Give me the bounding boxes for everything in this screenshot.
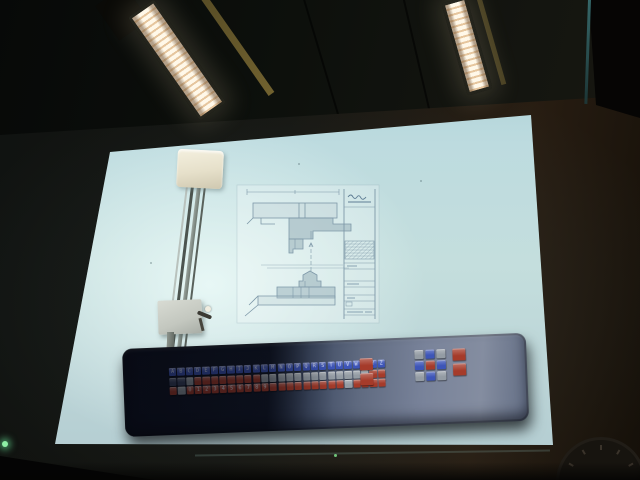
green-speck: [334, 454, 337, 457]
stand-carriage-box: [157, 299, 202, 335]
key-panel: ABCDEFGHIJKLMNOPQRSTUVWXYZ0123456789: [122, 333, 529, 437]
stand-top-box: [176, 149, 224, 189]
technical-drawing: [233, 183, 383, 325]
screen-tray: [195, 450, 550, 457]
room-photo: ABCDEFGHIJKLMNOPQRSTUVWXYZ0123456789: [0, 0, 640, 480]
dust-speck: [420, 180, 422, 182]
dust-speck: [150, 262, 152, 264]
dust-speck: [298, 163, 300, 165]
floor-shadow: [0, 462, 640, 480]
ceiling: [0, 0, 640, 140]
panel-shadow: [122, 333, 529, 437]
status-led: [2, 441, 8, 447]
ceiling-seam: [302, 0, 344, 131]
stand-crank-knob: [205, 306, 211, 312]
ceiling-seam: [402, 0, 431, 115]
